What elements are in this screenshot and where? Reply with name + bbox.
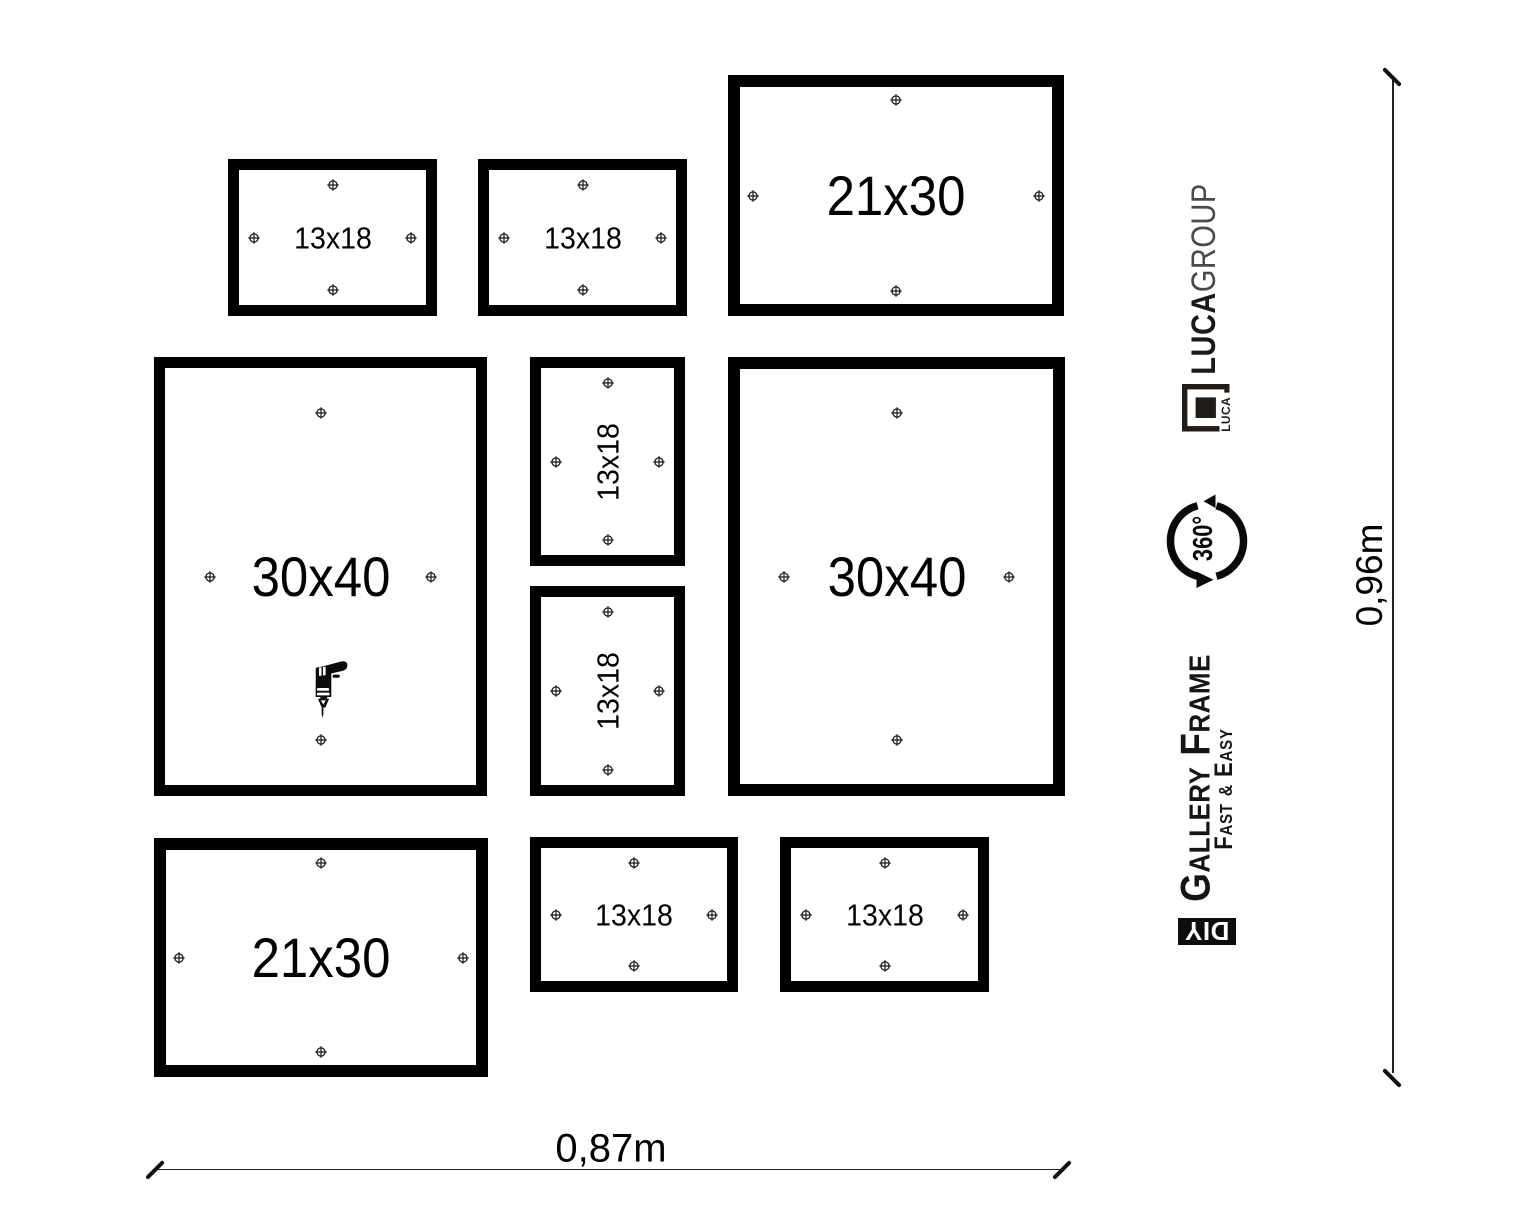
svg-text:LUCA: LUCA <box>1219 397 1231 432</box>
svg-text:360°: 360° <box>1187 516 1218 561</box>
